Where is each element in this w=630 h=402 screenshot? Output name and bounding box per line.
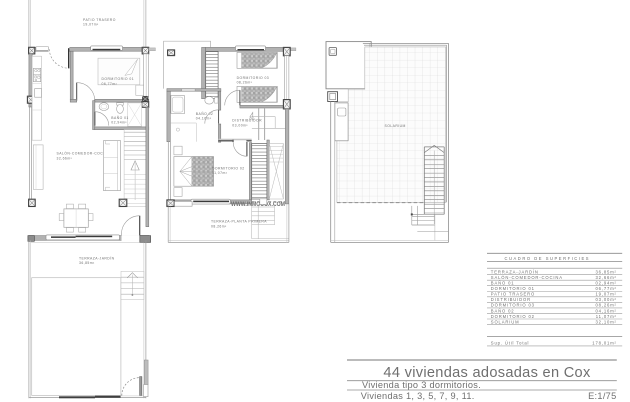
svg-text:03,00m²: 03,00m²: [232, 124, 248, 128]
svg-text:19,07m²: 19,07m²: [595, 292, 616, 297]
svg-text:DORMITORIO 02: DORMITORIO 02: [491, 314, 535, 319]
svg-text:SOLARIUM: SOLARIUM: [491, 319, 520, 324]
svg-text:03,00m²: 03,00m²: [595, 297, 616, 302]
svg-text:DISTRIBUIDOR: DISTRIBUIDOR: [491, 297, 531, 302]
svg-text:BAÑO 02: BAÑO 02: [196, 111, 213, 116]
svg-text:CUADRO DE SUPERFICIES: CUADRO DE SUPERFICIES: [505, 256, 591, 261]
svg-text:DORMITORIO 02: DORMITORIO 02: [212, 166, 245, 170]
svg-text:04,16m²: 04,16m²: [196, 117, 212, 121]
svg-text:TERRAZA-PLANTA PRIMERA: TERRAZA-PLANTA PRIMERA: [211, 220, 267, 224]
svg-text:DORMITORIO 01: DORMITORIO 01: [102, 77, 135, 81]
svg-text:BAÑO 01: BAÑO 01: [491, 281, 515, 286]
svg-text:06,77m²: 06,77m²: [595, 286, 616, 291]
svg-text:E:1/75: E:1/75: [588, 391, 616, 401]
svg-text:SALÓN-COMEDOR-COCINA: SALÓN-COMEDOR-COCINA: [57, 151, 111, 156]
svg-text:32,66m²: 32,66m²: [595, 275, 616, 280]
svg-text:DORMITORIO 03: DORMITORIO 03: [491, 303, 535, 308]
svg-text:TERRAZA-JARDÍN: TERRAZA-JARDÍN: [79, 256, 115, 260]
svg-text:32,10m²: 32,10m²: [595, 319, 616, 324]
svg-text:36,85m²: 36,85m²: [595, 269, 616, 274]
svg-text:SALÓN-COMEDOR-COCINA: SALÓN-COMEDOR-COCINA: [491, 275, 563, 280]
svg-text:02,94m²: 02,94m²: [111, 121, 127, 125]
svg-text:DISTRIBUIDOR: DISTRIBUIDOR: [232, 119, 262, 123]
svg-text:11,07m²: 11,07m²: [596, 314, 617, 319]
svg-text:TERRAZA-JARDÍN: TERRAZA-JARDÍN: [491, 269, 539, 274]
svg-text:Sup. Útil Total: Sup. Útil Total: [491, 341, 530, 346]
svg-text:SOLARIUM: SOLARIUM: [385, 124, 406, 128]
svg-text:36,85m²: 36,85m²: [79, 261, 95, 265]
svg-text:Viviendas 1, 3, 5, 7, 9, 11.: Viviendas 1, 3, 5, 7, 9, 11.: [361, 391, 475, 401]
svg-text:PATIO TRASERO: PATIO TRASERO: [83, 18, 116, 22]
svg-text:11,07m²: 11,07m²: [212, 171, 228, 175]
svg-text:04,16m²: 04,16m²: [595, 308, 616, 313]
svg-text:BAÑO 01: BAÑO 01: [111, 115, 128, 120]
svg-text:19,07m²: 19,07m²: [83, 22, 99, 26]
svg-text:02,94m²: 02,94m²: [595, 281, 616, 286]
svg-text:44 viviendas adosadas en Cox: 44 viviendas adosadas en Cox: [383, 365, 591, 381]
svg-text:06,77m²: 06,77m²: [102, 82, 118, 86]
svg-text:BAÑO 02: BAÑO 02: [491, 308, 515, 313]
svg-text:DORMITORIO 01: DORMITORIO 01: [491, 286, 535, 291]
svg-text:08,26m²: 08,26m²: [595, 303, 616, 308]
svg-text:08,26m²: 08,26m²: [211, 224, 227, 228]
svg-text:32,66m²: 32,66m²: [57, 156, 73, 160]
svg-text:08,26m²: 08,26m²: [237, 81, 253, 85]
svg-text:PATIO TRASERO: PATIO TRASERO: [491, 292, 535, 297]
svg-text:DORMITORIO 03: DORMITORIO 03: [237, 76, 270, 80]
svg-text:178,01m²: 178,01m²: [592, 341, 617, 346]
svg-text:Vivienda tipo 3 dormitorios.: Vivienda tipo 3 dormitorios.: [362, 380, 481, 390]
